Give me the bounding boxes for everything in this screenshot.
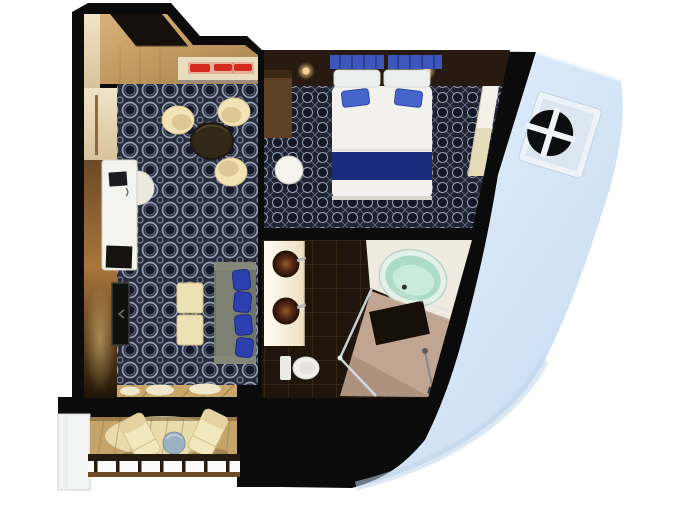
tv-panel bbox=[112, 283, 129, 345]
dresser bbox=[264, 70, 292, 138]
armchair bbox=[162, 106, 194, 134]
railing-top-rail bbox=[88, 454, 240, 461]
living-wall-beige bbox=[84, 88, 117, 160]
vessel-sink bbox=[273, 251, 300, 278]
railing-post bbox=[204, 461, 208, 473]
shower-door-handle bbox=[338, 356, 343, 361]
entry-wall-panel bbox=[84, 14, 100, 88]
ottoman bbox=[177, 283, 203, 313]
double-vanity bbox=[264, 241, 306, 346]
toilet bbox=[280, 356, 319, 380]
railing-bottom-rail bbox=[88, 472, 240, 477]
armchair bbox=[215, 158, 247, 186]
bed-pillow-blue bbox=[341, 88, 370, 107]
railing-post bbox=[160, 461, 164, 473]
living-room bbox=[84, 84, 258, 398]
armchair bbox=[218, 98, 250, 126]
round-side-table bbox=[275, 156, 303, 184]
desk-storage-bench bbox=[106, 246, 133, 269]
red-accent bbox=[190, 64, 210, 72]
double-bed bbox=[332, 70, 432, 200]
floorplan-svg bbox=[0, 0, 680, 510]
railing-post bbox=[138, 461, 142, 473]
round-table bbox=[191, 123, 233, 159]
sofa-pillow bbox=[232, 269, 251, 291]
red-accent bbox=[234, 64, 252, 71]
bed-pillow-blue bbox=[394, 88, 423, 107]
bed-runner bbox=[332, 152, 432, 180]
railing-post bbox=[94, 461, 98, 473]
ottoman bbox=[177, 315, 203, 345]
wall-ledge bbox=[95, 95, 98, 155]
bed-pillow-white bbox=[334, 70, 380, 87]
curtains bbox=[117, 384, 237, 398]
railing-post bbox=[226, 461, 230, 473]
sofa bbox=[214, 262, 256, 364]
balcony-railing bbox=[88, 454, 240, 477]
sofa-pillow bbox=[234, 314, 253, 335]
railing-post bbox=[182, 461, 186, 473]
red-glass-accents bbox=[188, 62, 254, 74]
sofa-pillow bbox=[235, 337, 254, 358]
red-accent bbox=[214, 64, 232, 71]
laptop bbox=[109, 171, 128, 186]
privacy-divider bbox=[58, 414, 90, 490]
suite-floorplan-render bbox=[0, 0, 680, 510]
sofa-pillow bbox=[233, 291, 252, 312]
wall-light-glow bbox=[84, 285, 116, 395]
shower-head bbox=[422, 348, 428, 354]
bed-pillow-white bbox=[384, 70, 430, 87]
railing-post bbox=[116, 461, 120, 473]
vessel-sink bbox=[273, 298, 300, 325]
